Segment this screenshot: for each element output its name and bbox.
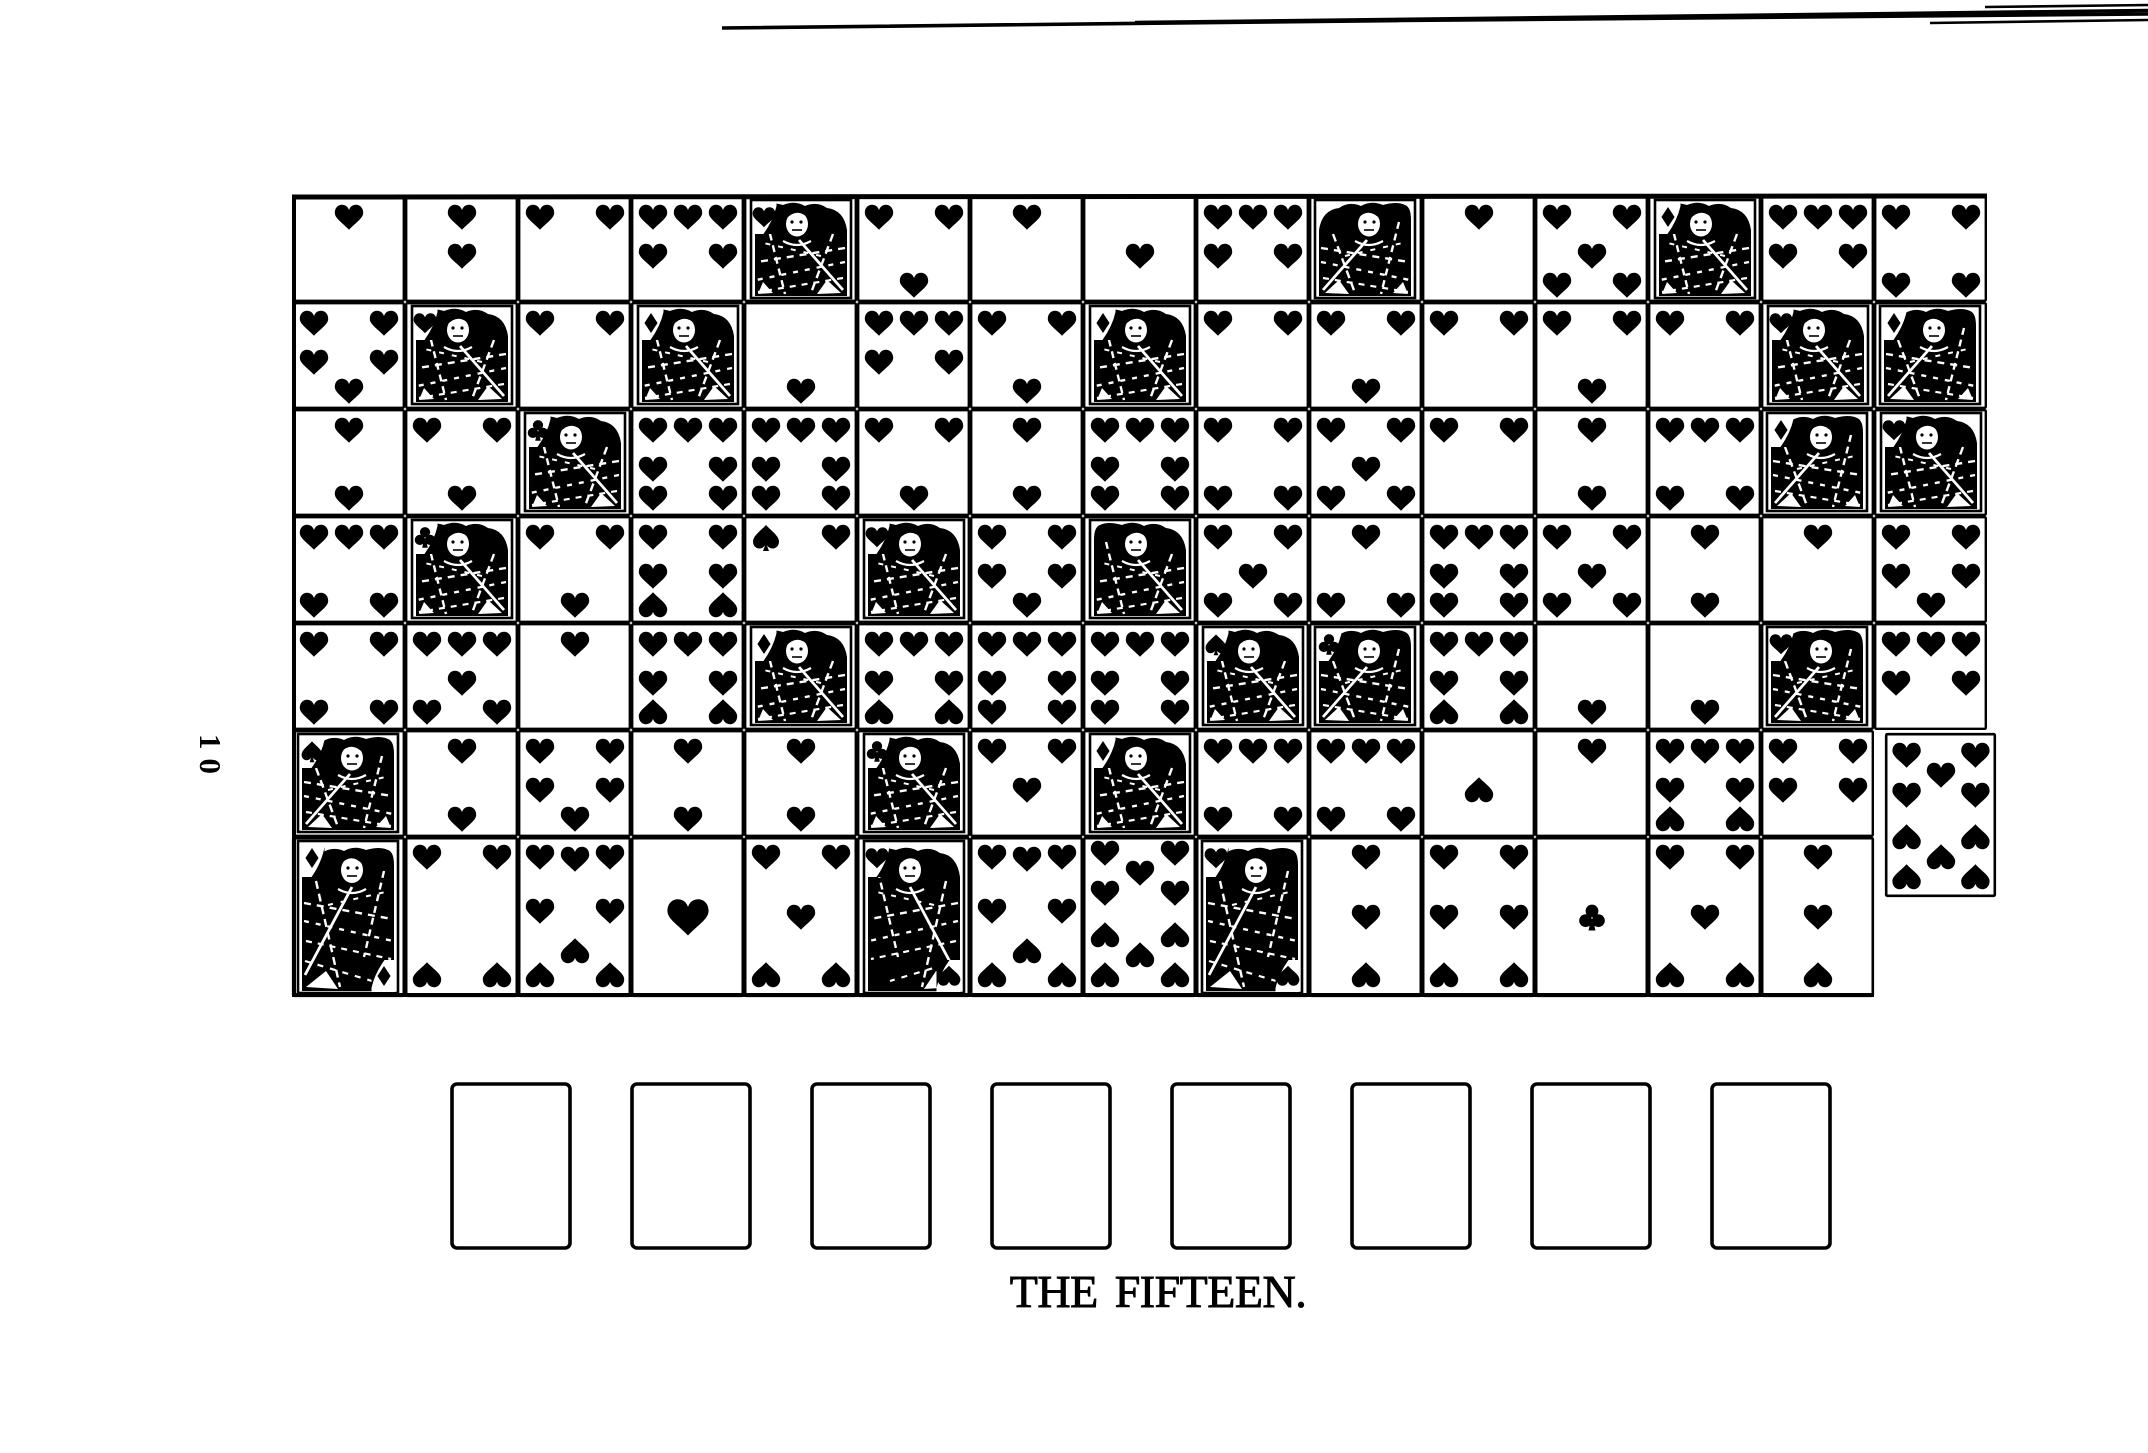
svg-text:THE FIFTEEN.: THE FIFTEEN.: [1010, 1266, 1306, 1317]
svg-text:10: 10: [193, 734, 228, 783]
